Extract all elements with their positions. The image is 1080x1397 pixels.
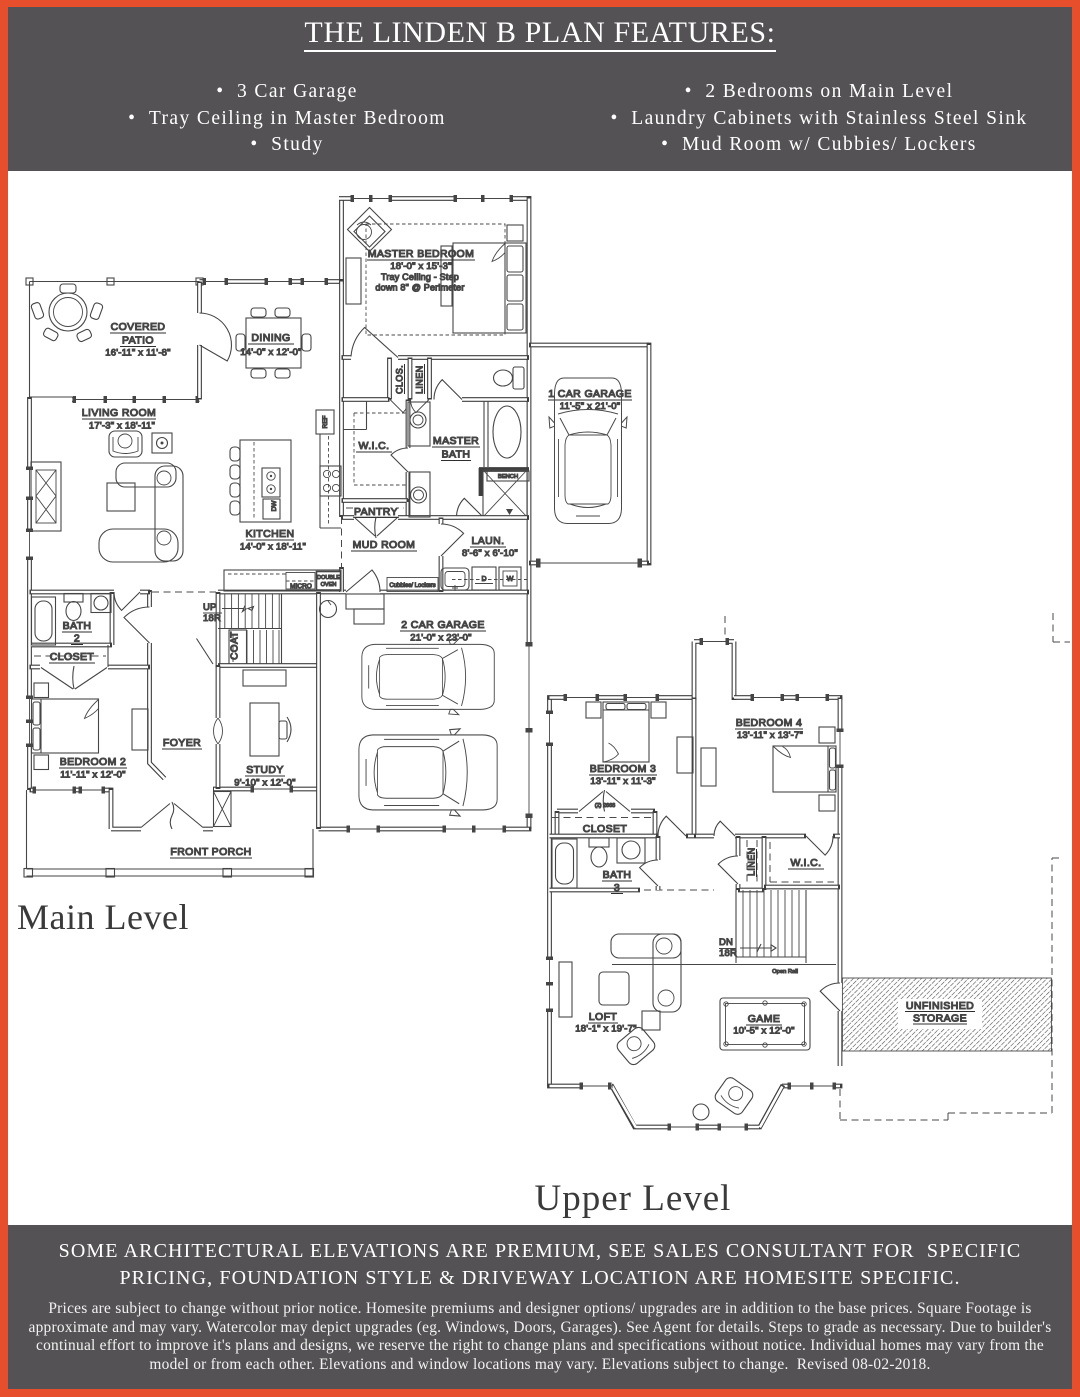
svg-text:Cubbies/ Lockers: Cubbies/ Lockers	[389, 583, 435, 589]
svg-text:BEDROOM 4: BEDROOM 4	[736, 717, 803, 729]
svg-text:1 CAR GARAGE: 1 CAR GARAGE	[548, 388, 632, 400]
svg-text:CLOS.: CLOS.	[395, 365, 405, 394]
svg-text:BEDROOM 3: BEDROOM 3	[590, 763, 657, 775]
svg-text:W: W	[507, 576, 514, 583]
svg-text:2: 2	[74, 633, 80, 645]
svg-text:DN: DN	[719, 937, 733, 948]
svg-text:DW: DW	[271, 500, 278, 512]
svg-text:18'-1" x 19'-7": 18'-1" x 19'-7"	[575, 1024, 636, 1035]
svg-text:18R: 18R	[203, 613, 221, 624]
svg-text:COAT: COAT	[230, 631, 241, 660]
svg-text:21'-0" x 23'-0": 21'-0" x 23'-0"	[410, 633, 471, 644]
svg-text:MASTER BEDROOM: MASTER BEDROOM	[368, 248, 475, 260]
svg-text:D: D	[481, 576, 486, 583]
svg-text:REF: REF	[322, 415, 329, 428]
svg-text:FRONT PORCH: FRONT PORCH	[170, 846, 251, 858]
svg-text:UP: UP	[203, 602, 217, 613]
svg-text:LINEN: LINEN	[415, 365, 425, 394]
svg-text:LIVING ROOM: LIVING ROOM	[82, 407, 156, 419]
svg-text:STUDY: STUDY	[246, 764, 284, 776]
svg-text:10'-5" x 12'-0": 10'-5" x 12'-0"	[733, 1026, 794, 1037]
svg-text:BATH: BATH	[63, 620, 92, 632]
svg-text:PATIO: PATIO	[122, 335, 154, 347]
svg-text:Open Rail: Open Rail	[772, 969, 798, 975]
svg-text:STORAGE: STORAGE	[913, 1013, 967, 1025]
svg-text:CLOSET: CLOSET	[50, 651, 95, 663]
svg-text:13'-11" x 11'-3": 13'-11" x 11'-3"	[590, 776, 656, 787]
svg-text:17'-3" x 18'-11": 17'-3" x 18'-11"	[89, 421, 155, 432]
svg-text:LINEN: LINEN	[747, 847, 757, 876]
svg-text:BENCH: BENCH	[498, 474, 518, 480]
svg-text:16'-11" x 11'-8": 16'-11" x 11'-8"	[105, 348, 171, 359]
svg-text:DINING: DINING	[251, 332, 290, 344]
svg-text:UNFINISHED: UNFINISHED	[906, 1000, 974, 1012]
svg-text:3: 3	[614, 882, 620, 894]
svg-text:LAUN.: LAUN.	[472, 535, 505, 547]
svg-text:MASTER: MASTER	[433, 435, 479, 447]
svg-text:LOFT: LOFT	[589, 1011, 618, 1023]
svg-text:DOUBLE: DOUBLE	[317, 575, 340, 581]
svg-text:13'-11" x 13'-7": 13'-11" x 13'-7"	[737, 730, 803, 741]
svg-text:18R: 18R	[719, 948, 737, 959]
svg-text:BATH: BATH	[603, 869, 632, 881]
svg-text:KITCHEN: KITCHEN	[246, 528, 295, 540]
svg-text:11'-11" x 12'-0": 11'-11" x 12'-0"	[60, 770, 126, 781]
svg-text:FOYER: FOYER	[163, 737, 201, 749]
svg-text:GAME: GAME	[748, 1013, 781, 1025]
svg-text:CLOSET: CLOSET	[583, 823, 628, 835]
svg-text:11'-5" x 21'-0": 11'-5" x 21'-0"	[560, 401, 621, 412]
svg-text:8'-6" x 6'-10": 8'-6" x 6'-10"	[462, 548, 518, 559]
svg-text:18'-0" x 15'-3": 18'-0" x 15'-3"	[390, 261, 451, 272]
svg-text:MUD ROOM: MUD ROOM	[353, 539, 416, 551]
svg-text:MICRO: MICRO	[290, 583, 312, 590]
svg-text:PANTRY: PANTRY	[354, 506, 398, 518]
svg-text:14'-0" x 12'-0": 14'-0" x 12'-0"	[240, 347, 301, 358]
svg-text:9'-10" x 12'-0": 9'-10" x 12'-0"	[234, 778, 295, 789]
svg-text:(2) 2668: (2) 2668	[595, 803, 616, 809]
svg-text:2 CAR GARAGE: 2 CAR GARAGE	[401, 619, 485, 631]
svg-text:OVEN: OVEN	[321, 582, 337, 588]
svg-text:BATH: BATH	[442, 449, 471, 461]
svg-text:down 8" @ Perimeter: down 8" @ Perimeter	[375, 283, 464, 293]
svg-text:14'-0" x 18'-11": 14'-0" x 18'-11"	[240, 542, 306, 553]
svg-text:W.I.C.: W.I.C.	[791, 857, 822, 869]
svg-text:Tray Ceiling - Step: Tray Ceiling - Step	[381, 272, 459, 282]
svg-text:COVERED: COVERED	[111, 321, 166, 333]
svg-text:BEDROOM 2: BEDROOM 2	[60, 756, 127, 768]
svg-text:W.I.C.: W.I.C.	[359, 440, 390, 452]
